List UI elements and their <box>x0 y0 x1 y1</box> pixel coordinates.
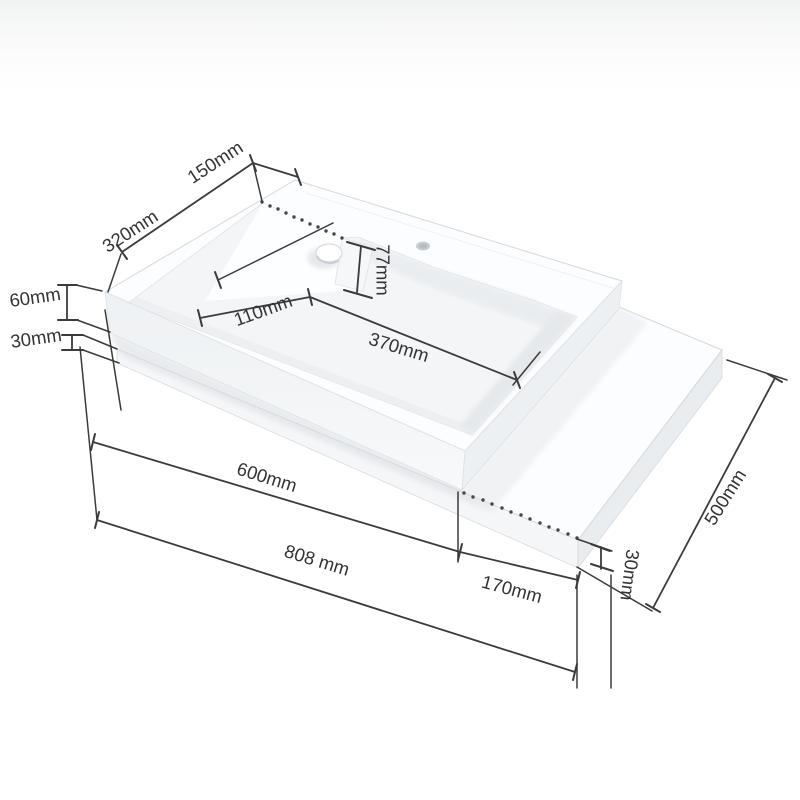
background-top-shade <box>0 0 800 110</box>
dimension-label-77mm: 77mm <box>373 244 394 295</box>
diagram-canvas: 150mm 320mm 60mm 30mm 110mm 77mm 370mm 6… <box>0 0 800 800</box>
washbasin-dimension-diagram: 150mm 320mm 60mm 30mm 110mm 77mm 370mm 6… <box>0 0 800 800</box>
faucet-hole-center <box>419 244 427 249</box>
